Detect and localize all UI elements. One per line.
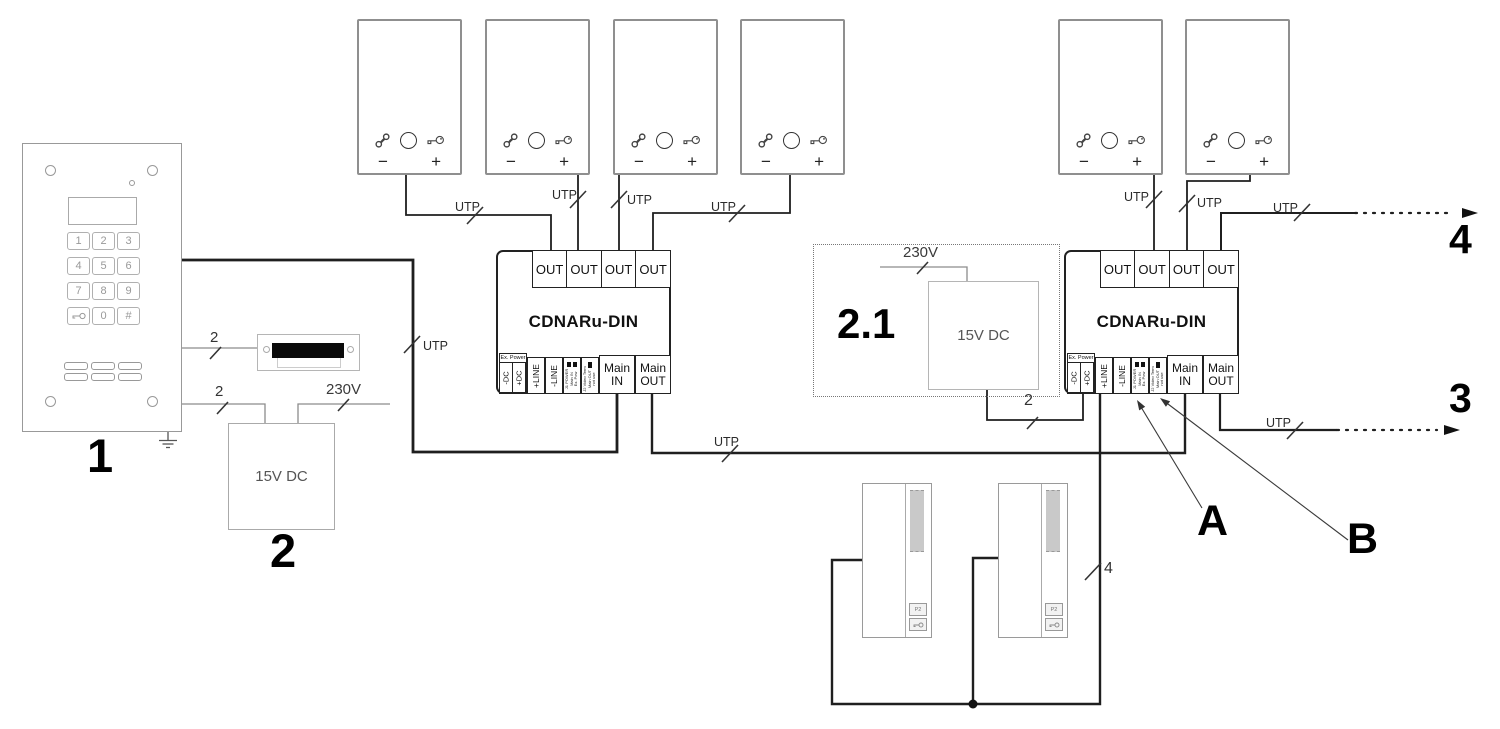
cable-label-utp: UTP [1273, 201, 1298, 215]
callout-jumper-a: A [1197, 500, 1228, 543]
out-terminal-2: OUT [566, 250, 602, 288]
wall-monitor-1: P2 [862, 483, 932, 638]
out-terminal-3: OUT [1169, 250, 1205, 288]
cable-label-utp: UTP [714, 435, 739, 449]
callout-power-supply: 2 [270, 527, 296, 574]
screw-hole-icon [263, 346, 270, 353]
main-out-terminal: MainOUT [1203, 355, 1239, 394]
wire-monitor-branch [973, 558, 998, 704]
cable-label-utp: UTP [1124, 190, 1149, 204]
pos-dc-label: +DC [1083, 370, 1092, 385]
key-icon [1049, 622, 1060, 628]
key-icon [913, 622, 924, 628]
volume-minus[interactable]: − [1206, 152, 1216, 172]
neg-dc-label: -DC [502, 371, 511, 384]
callout-extra-power-supply: 2.1 [837, 303, 895, 345]
key-icon [426, 134, 445, 147]
callout-door-panel: 1 [87, 432, 113, 479]
distributor-module-1: OUT OUT OUT OUT CDNARu-DIN Ex. Power -DC… [496, 250, 671, 394]
function-button[interactable]: P2 [1045, 603, 1063, 616]
key-5[interactable]: 5 [92, 257, 115, 275]
speaker-grille-icon [64, 362, 142, 381]
jumper-j1[interactable]: J1 POWER Main IN Ex. Pow [1131, 357, 1149, 394]
volume-plus[interactable]: + [687, 152, 697, 172]
handset-icon [502, 132, 519, 149]
volume-minus[interactable]: − [506, 152, 516, 172]
out-terminal-4: OUT [635, 250, 671, 288]
wire-230v-to-psu2 [298, 404, 390, 423]
door-entry-panel: 1 2 3 4 5 6 7 8 9 [22, 143, 182, 432]
handset-icon [1202, 132, 1219, 149]
call-button[interactable] [400, 132, 417, 149]
module-name: CDNARu-DIN [1064, 312, 1239, 332]
cable-label-utp: UTP [1197, 196, 1222, 210]
panel-keypad: 1 2 3 4 5 6 7 8 9 [67, 232, 140, 325]
monitor-divider [1041, 484, 1042, 637]
ex-power-label: Ex. Power [500, 355, 526, 361]
screw-icon [45, 165, 56, 176]
wall-monitor-2: P2 [998, 483, 1068, 638]
wire-count-label: 2 [1024, 392, 1033, 410]
screw-icon [147, 396, 158, 407]
uniphone-1: − + [357, 19, 462, 175]
screw-icon [45, 396, 56, 407]
plus-line-terminal: +LINE [1095, 357, 1113, 394]
volume-plus[interactable]: + [814, 152, 824, 172]
key-1[interactable]: 1 [67, 232, 90, 250]
key-4[interactable]: 4 [67, 257, 90, 275]
arrow-callout-b [1160, 398, 1170, 407]
key-icon [682, 134, 701, 147]
uniphone-5: − + [1058, 19, 1163, 175]
minus-line-label: -LINE [1117, 365, 1127, 387]
volume-plus[interactable]: + [1132, 152, 1142, 172]
distributor-module-2: OUT OUT OUT OUT CDNARu-DIN Ex. Power -DC… [1064, 250, 1239, 394]
plus-line-label: +LINE [531, 364, 541, 388]
uniphone-3: − + [613, 19, 718, 175]
cable-label-utp: UTP [627, 193, 652, 207]
volume-minus[interactable]: − [378, 152, 388, 172]
monitor-handset-slot [1046, 490, 1060, 552]
cable-label-utp: UTP [1266, 416, 1291, 430]
out-terminal-1: OUT [1100, 250, 1136, 288]
wire-count-label: 4 [1104, 560, 1113, 578]
call-button[interactable] [1228, 132, 1245, 149]
module-name: CDNARu-DIN [496, 312, 671, 332]
handset-icon [757, 132, 774, 149]
arrow-callout-a [1137, 400, 1145, 410]
out-terminal-3: OUT [601, 250, 637, 288]
handset-icon [374, 132, 391, 149]
ground-symbol [159, 430, 177, 448]
key-icon [72, 312, 86, 320]
handset-icon [1075, 132, 1092, 149]
wire-uniphone6-out3 [1187, 173, 1250, 250]
mains-voltage-label: 230V [326, 381, 361, 398]
plus-line-label: +LINE [1099, 364, 1109, 388]
call-button[interactable] [783, 132, 800, 149]
function-button[interactable]: P2 [909, 603, 927, 616]
power-supply-15vdc-extra: 15V DC [928, 281, 1039, 390]
cable-label-utp: UTP [455, 200, 480, 214]
callout-leaders [1141, 401, 1348, 540]
key-icon [554, 134, 573, 147]
door-open-button[interactable] [1045, 618, 1063, 631]
mains-voltage-label: 230V [903, 244, 938, 261]
volume-plus[interactable]: + [559, 152, 569, 172]
volume-minus[interactable]: − [761, 152, 771, 172]
wire-count-label: 2 [215, 383, 223, 400]
key-0[interactable]: 0 [92, 307, 115, 325]
uniphone-2: − + [485, 19, 590, 175]
key-icon [1127, 134, 1146, 147]
monitor-handset-slot [910, 490, 924, 552]
pos-dc-label: +DC [515, 370, 524, 385]
key-hash[interactable]: # [117, 307, 140, 325]
main-in-terminal: MainIN [599, 355, 635, 394]
key-icon [1254, 134, 1273, 147]
main-out-terminal: MainOUT [635, 355, 671, 394]
callout-riser-4: 4 [1449, 219, 1472, 260]
handset-icon [630, 132, 647, 149]
key-7[interactable]: 7 [67, 282, 90, 300]
minus-line-terminal: -LINE [545, 357, 563, 394]
panel-display [68, 197, 137, 225]
microphone-hole-icon [129, 180, 135, 186]
key-8[interactable]: 8 [92, 282, 115, 300]
cable-label-utp: UTP [552, 188, 577, 202]
screw-icon [147, 165, 158, 176]
minus-line-terminal: -LINE [1113, 357, 1131, 394]
key-icon [809, 134, 828, 147]
minus-line-label: -LINE [549, 365, 559, 387]
call-button[interactable] [528, 132, 545, 149]
strike-faceplate [277, 358, 341, 368]
key-9[interactable]: 9 [117, 282, 140, 300]
screw-hole-icon [347, 346, 354, 353]
main-in-terminal: MainIN [1167, 355, 1203, 394]
jumper-j2[interactable]: J2 Video Term Main OUT not use [581, 357, 599, 394]
callout-jumper-b: B [1347, 518, 1378, 561]
key-6[interactable]: 6 [117, 257, 140, 275]
ex-power-terminal: Ex. Power -DC +DC [1067, 353, 1095, 394]
strike-latch [272, 343, 344, 358]
power-supply-label: 15V DC [255, 468, 308, 485]
key-3[interactable]: 3 [117, 232, 140, 250]
monitor-divider [905, 484, 906, 637]
out-terminal-1: OUT [532, 250, 568, 288]
electric-door-strike [257, 334, 360, 371]
out-terminal-4: OUT [1203, 250, 1239, 288]
plus-line-terminal: +LINE [527, 357, 545, 394]
arrow-riser3 [1444, 425, 1460, 435]
cable-label-utp: UTP [711, 200, 736, 214]
call-button[interactable] [1101, 132, 1118, 149]
wire-count-label: 2 [210, 329, 218, 346]
uniphone-4: − + [740, 19, 845, 175]
door-open-button[interactable] [909, 618, 927, 631]
volume-plus[interactable]: + [1259, 152, 1269, 172]
power-supply-15vdc: 15V DC [228, 423, 335, 530]
jumper-j2[interactable]: J2 Video Term Main OUT not use [1149, 357, 1167, 394]
volume-plus[interactable]: + [431, 152, 441, 172]
neg-dc-label: -DC [1070, 371, 1079, 384]
volume-minus[interactable]: − [634, 152, 644, 172]
out-terminal-2: OUT [1134, 250, 1170, 288]
key-unlock[interactable] [67, 307, 90, 325]
uniphone-6: − + [1185, 19, 1290, 175]
jumper-j1[interactable]: J1 POWER Main IN Ex. Pow [563, 357, 581, 394]
ex-power-terminal: Ex. Power -DC +DC [499, 353, 527, 394]
junction-dot [969, 700, 978, 709]
wire-riser4-solid [1221, 213, 1355, 250]
cable-label-utp: UTP [423, 339, 448, 353]
wiring-diagram: 1 2 3 4 5 6 7 8 9 [0, 0, 1500, 729]
callout-riser-3: 3 [1449, 378, 1472, 419]
call-button[interactable] [656, 132, 673, 149]
ex-power-label: Ex. Power [1068, 355, 1094, 361]
key-2[interactable]: 2 [92, 232, 115, 250]
power-supply-label: 15V DC [957, 327, 1010, 344]
volume-minus[interactable]: − [1079, 152, 1089, 172]
